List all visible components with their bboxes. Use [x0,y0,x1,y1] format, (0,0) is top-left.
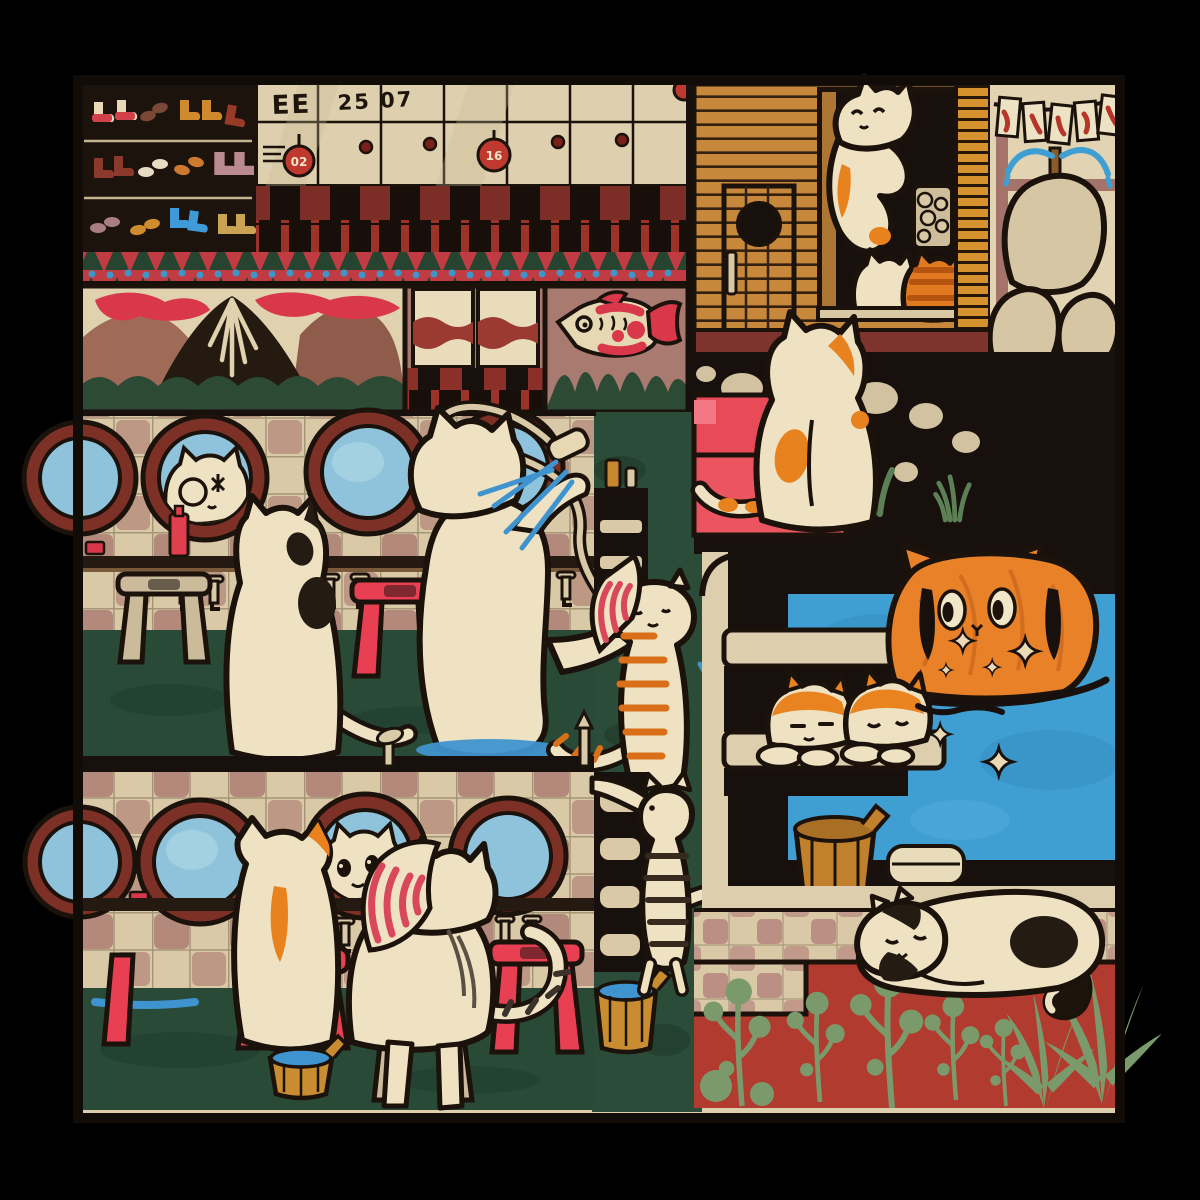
folded-towel [888,846,964,884]
bamboo-fence [956,84,990,348]
checker-band-top [256,186,688,220]
key-tag-a-label: 02 [291,155,308,169]
entrance-area: EE 25 07 02 16 [80,80,694,286]
steps-and-plant-wall [694,886,1162,1108]
cat-orange-patch-back [234,818,338,1050]
locker-label-b: 25 07 [337,87,414,115]
locker-label-a: EE [271,90,312,121]
fuji-mural [80,286,405,412]
stool-red-left-partial [104,955,133,1044]
bath-pool-room [702,540,1122,912]
noren-curtain [405,286,545,412]
bathhouse-illustration: EE 25 07 02 16 [0,0,1200,1200]
leaf-border [80,252,688,284]
sauna-window [818,76,967,320]
sauna-cabin [694,76,988,332]
koi-fish-panel [545,286,688,412]
sauna-door [724,186,794,332]
checker-band-bottom [256,220,688,252]
shampoo-bottle [170,514,188,556]
artwork-canvas: EE 25 07 02 16 [0,0,1200,1200]
stone-basket [914,186,952,248]
key-tag-b-label: 16 [486,149,503,163]
door-window [738,203,780,245]
